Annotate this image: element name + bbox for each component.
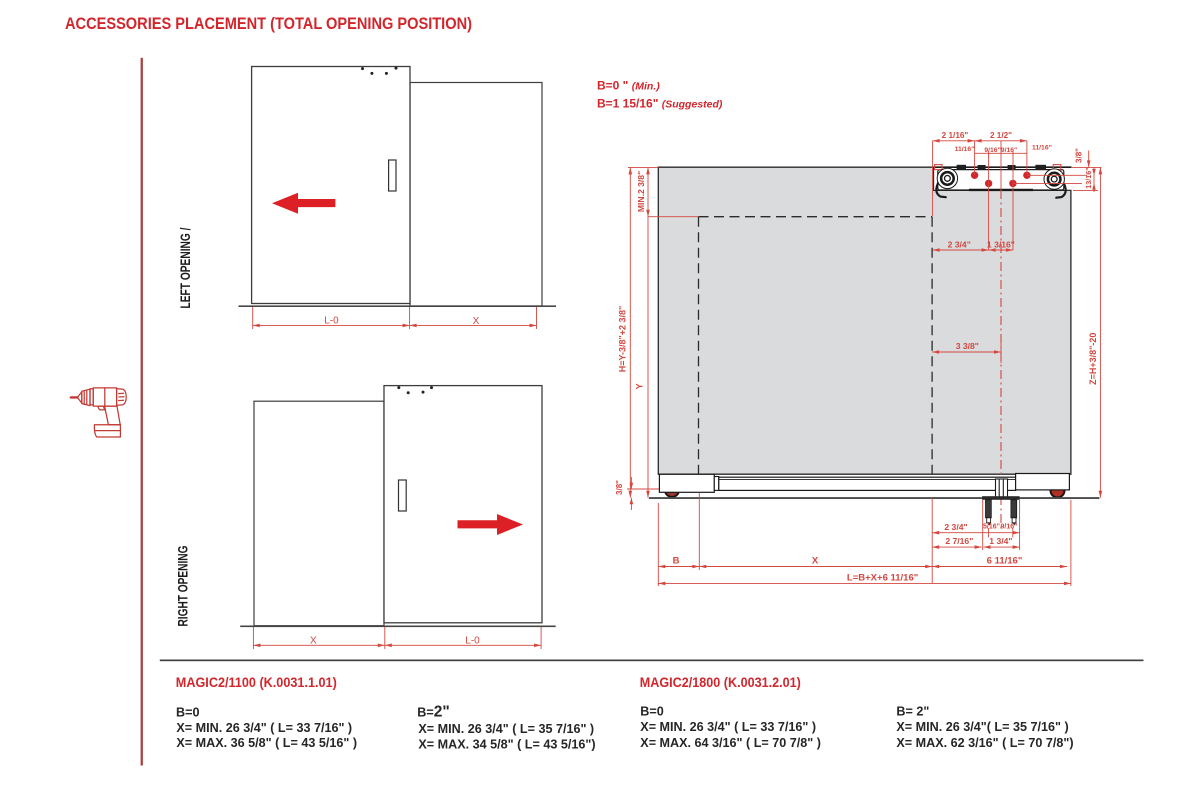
- svg-text:MAGIC2/1800 (K.0031.2.01): MAGIC2/1800 (K.0031.2.01): [640, 675, 801, 690]
- svg-text:2 3/4": 2 3/4": [948, 239, 971, 249]
- svg-text:X: X: [473, 316, 480, 327]
- svg-text:L-0: L-0: [324, 315, 339, 326]
- svg-text:X= MIN. 26 3/4"( L= 35 7/16" ): X= MIN. 26 3/4"( L= 35 7/16" ): [896, 720, 1068, 734]
- svg-text:B=0: B=0: [176, 706, 199, 720]
- svg-text:B= 2": B= 2": [896, 705, 929, 719]
- svg-text:3/8": 3/8": [1075, 148, 1084, 163]
- svg-text:11/16": 11/16": [955, 146, 975, 153]
- svg-text:X= MAX. 62 3/16" ( L= 70 7/8"): X= MAX. 62 3/16" ( L= 70 7/8"): [896, 736, 1073, 750]
- svg-text:B=1 15/16" (Suggested): B=1 15/16" (Suggested): [597, 97, 723, 111]
- svg-text:2 3/4": 2 3/4": [944, 522, 967, 532]
- svg-text:2 7/16": 2 7/16": [945, 536, 973, 546]
- svg-text:B=0 " (Min.): B=0 " (Min.): [597, 79, 660, 93]
- svg-text:5/16": 5/16": [983, 524, 1000, 531]
- svg-text:3 3/8": 3 3/8": [956, 341, 979, 351]
- svg-text:Y: Y: [635, 383, 645, 389]
- svg-text:L=B+X+6 11/16": L=B+X+6 11/16": [847, 573, 918, 584]
- svg-text:1 3/16": 1 3/16": [987, 239, 1015, 249]
- svg-text:9/16": 9/16": [1001, 524, 1018, 531]
- svg-text:Z=H+3/8"-20: Z=H+3/8"-20: [1088, 333, 1098, 385]
- svg-text:X: X: [812, 556, 819, 567]
- svg-text:MIN.2 3/8": MIN.2 3/8": [636, 171, 646, 212]
- svg-text:RIGHT OPENING: RIGHT OPENING: [175, 545, 191, 626]
- svg-text:X= MIN. 26 3/4" ( L= 35 7/16": X= MIN. 26 3/4" ( L= 35 7/16" ): [418, 722, 594, 736]
- svg-text:MAGIC2/1100 (K.0031.1.01): MAGIC2/1100 (K.0031.1.01): [176, 675, 337, 690]
- svg-text:X= MIN. 26 3/4" ( L= 33 7/16": X= MIN. 26 3/4" ( L= 33 7/16" ): [176, 721, 352, 735]
- svg-text:X= MIN. 26 3/4" ( L= 33 7/16": X= MIN. 26 3/4" ( L= 33 7/16" ): [640, 720, 816, 734]
- svg-text:2 1/2": 2 1/2": [990, 131, 1012, 140]
- svg-text:3/8": 3/8": [615, 480, 624, 495]
- svg-text:B: B: [673, 556, 680, 567]
- svg-text:1 3/4": 1 3/4": [989, 536, 1012, 546]
- svg-text:2 1/16": 2 1/16": [942, 131, 969, 140]
- svg-text:L-0: L-0: [465, 635, 480, 646]
- svg-text:X= MAX. 36 5/8" ( L= 43 5/16": X= MAX. 36 5/8" ( L= 43 5/16" ): [176, 736, 357, 750]
- svg-text:9/16"9/16": 9/16"9/16": [984, 147, 1017, 154]
- svg-text:ACCESSORIES PLACEMENT (TOTAL O: ACCESSORIES PLACEMENT (TOTAL OPENING POS…: [65, 15, 472, 33]
- svg-text:X= MAX. 64 3/16" ( L= 70 7/8": X= MAX. 64 3/16" ( L= 70 7/8" ): [640, 736, 821, 750]
- svg-text:X= MAX. 34 5/8" ( L= 43 5/16"): X= MAX. 34 5/8" ( L= 43 5/16"): [418, 738, 595, 752]
- svg-text:B=0: B=0: [640, 705, 663, 719]
- svg-text:H=Y-3/8"+2 3/8": H=Y-3/8"+2 3/8": [617, 306, 627, 373]
- svg-text:LEFT OPENING /: LEFT OPENING /: [177, 227, 193, 308]
- svg-text:B=2": B=2": [417, 704, 449, 721]
- svg-text:13/16": 13/16": [1084, 167, 1093, 188]
- svg-text:X: X: [310, 636, 317, 647]
- svg-text:6 11/16": 6 11/16": [987, 556, 1023, 567]
- svg-text:11/16": 11/16": [1032, 144, 1052, 151]
